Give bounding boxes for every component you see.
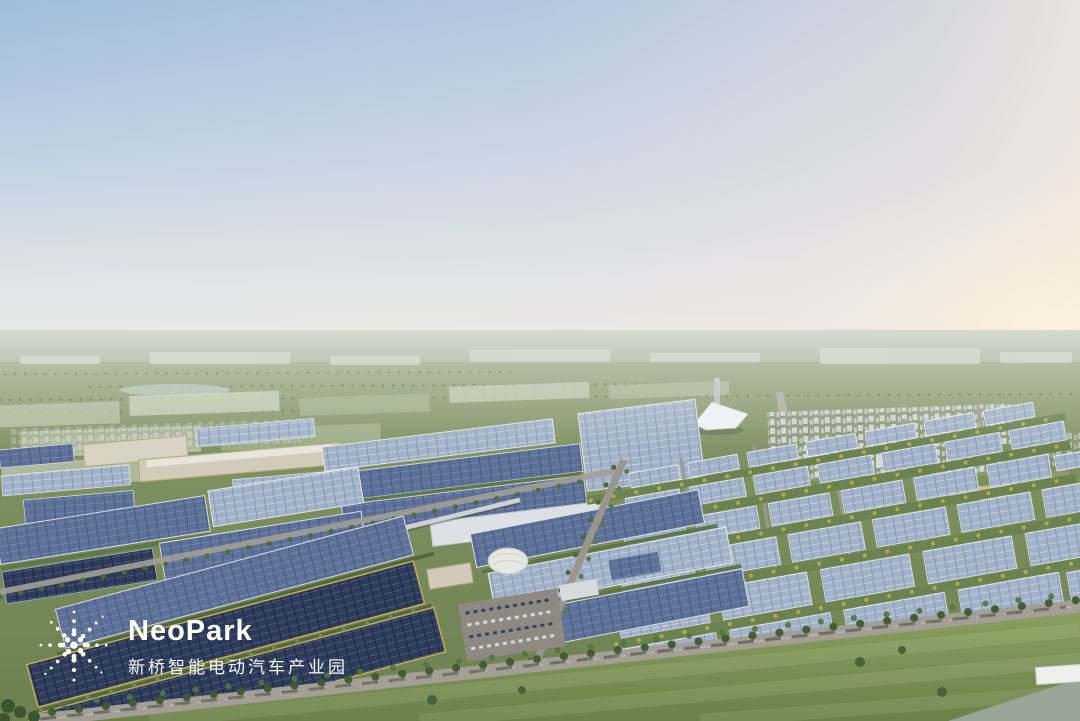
particle-burst-icon <box>28 598 120 696</box>
brand-subtitle: 新桥智能电动汽车产业园 <box>128 653 348 678</box>
neopark-logo: NeoPark 新桥智能电动汽车产业园 <box>28 598 348 696</box>
aerial-render-industrial-park: NeoPark 新桥智能电动汽车产业园 <box>0 0 1080 721</box>
atmospheric-haze <box>0 330 1080 450</box>
brand-name: NeoPark <box>128 616 348 646</box>
